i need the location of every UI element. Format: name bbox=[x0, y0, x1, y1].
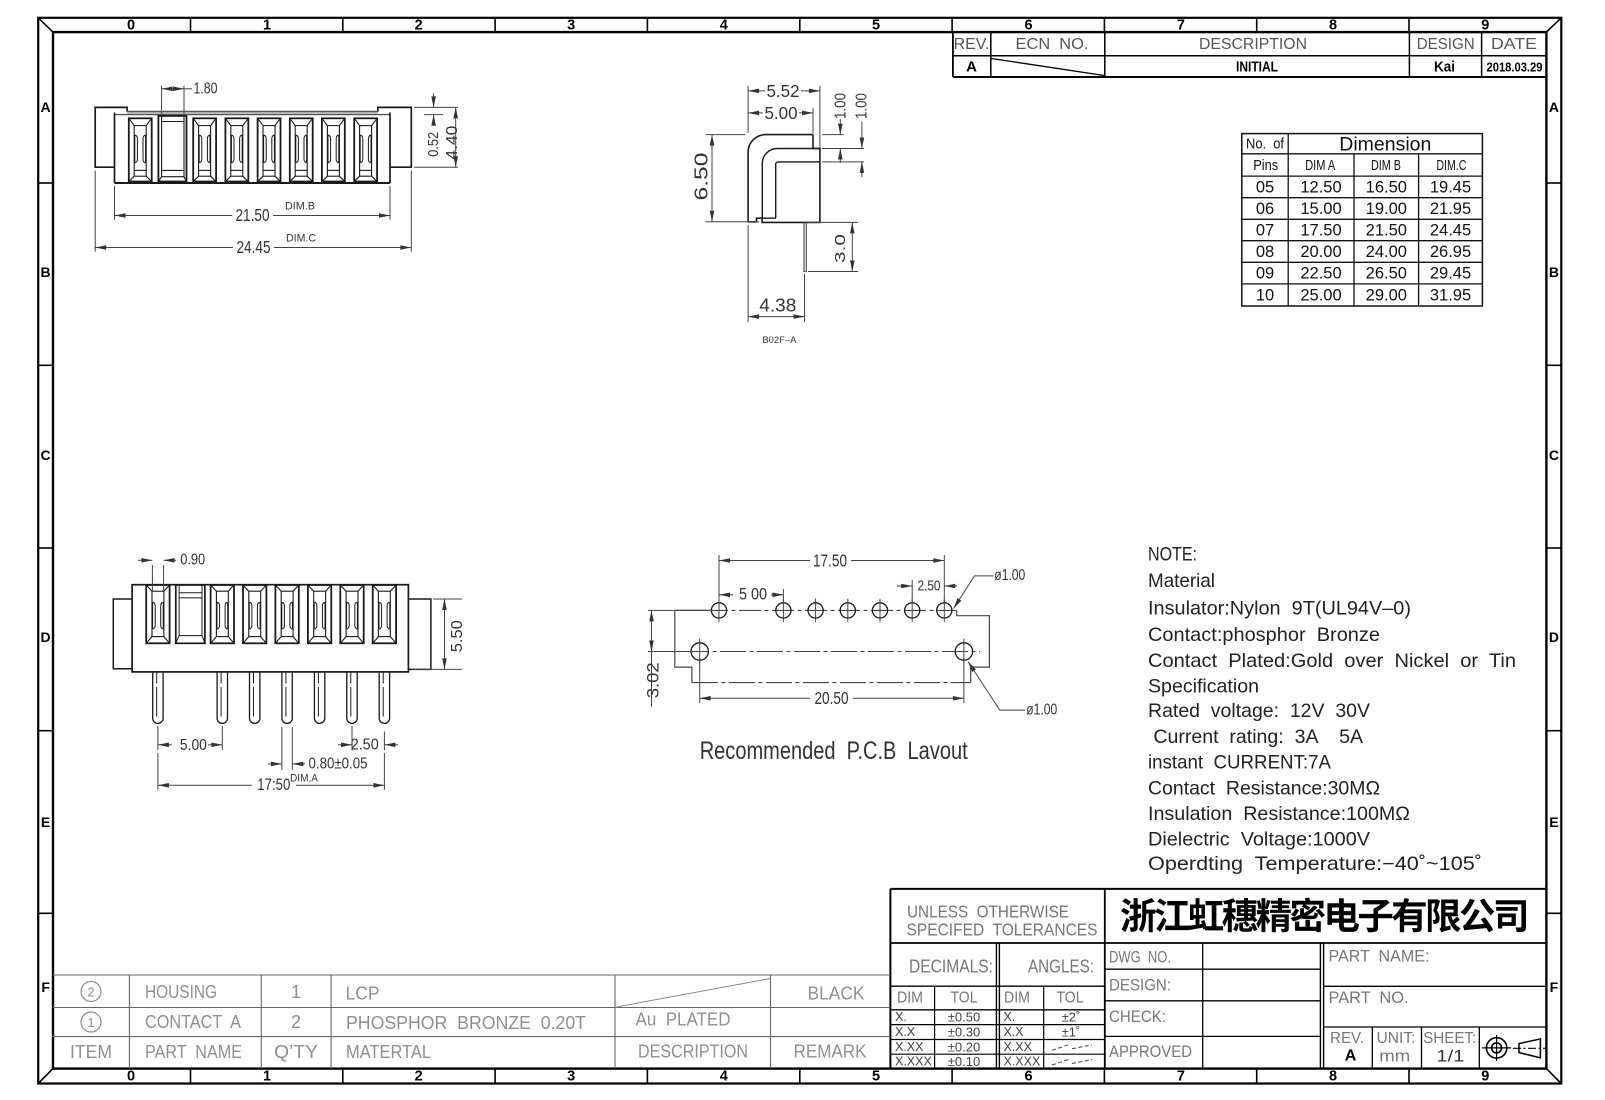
svg-text:Current rating: 3A 5A: Current rating: 3A 5A bbox=[1148, 726, 1363, 748]
svg-text:2: 2 bbox=[291, 1012, 301, 1032]
svg-text:5.50: 5.50 bbox=[449, 620, 466, 652]
svg-text:X.: X. bbox=[1004, 1010, 1016, 1024]
svg-text:Rated voltage: 12V 30V: Rated voltage: 12V 30V bbox=[1148, 700, 1370, 722]
svg-text:8: 8 bbox=[1329, 17, 1337, 33]
svg-text:±0.50: ±0.50 bbox=[948, 1010, 980, 1025]
svg-text:25.00: 25.00 bbox=[1300, 286, 1341, 304]
svg-text:0.80±0.05: 0.80±0.05 bbox=[309, 755, 368, 772]
svg-text:REV.: REV. bbox=[954, 36, 990, 53]
svg-text:6: 6 bbox=[1024, 17, 1032, 33]
svg-text:3: 3 bbox=[567, 17, 575, 33]
svg-text:PHOSPHOR BRONZE 0.20T: PHOSPHOR BRONZE 0.20T bbox=[346, 1013, 586, 1033]
svg-text:26.50: 26.50 bbox=[1366, 265, 1407, 283]
svg-text:21.50: 21.50 bbox=[1366, 221, 1407, 239]
svg-text:A: A bbox=[41, 99, 51, 115]
svg-text:CHECK:: CHECK: bbox=[1109, 1007, 1166, 1026]
svg-text:DIM.C: DIM.C bbox=[286, 232, 316, 244]
svg-text:X.X: X.X bbox=[895, 1025, 916, 1039]
svg-text:24.45: 24.45 bbox=[1430, 221, 1471, 239]
svg-text:X.XXX: X.XXX bbox=[895, 1055, 932, 1069]
svg-text:4: 4 bbox=[720, 17, 728, 33]
svg-text:±1˚: ±1˚ bbox=[1062, 1025, 1081, 1040]
svg-text:Recommended P.C.B Lavout: Recommended P.C.B Lavout bbox=[700, 737, 968, 765]
svg-text:0: 0 bbox=[127, 17, 135, 33]
svg-text:21.50: 21.50 bbox=[236, 205, 270, 225]
svg-text:D: D bbox=[41, 629, 51, 645]
svg-text:E: E bbox=[1549, 814, 1558, 830]
svg-text:1.00: 1.00 bbox=[854, 93, 871, 119]
svg-text:DIM.B: DIM.B bbox=[285, 200, 315, 212]
svg-text:PART NAME: PART NAME bbox=[145, 1042, 242, 1062]
svg-text:31.95: 31.95 bbox=[1430, 286, 1471, 304]
svg-text:10: 10 bbox=[1256, 286, 1274, 304]
svg-text:24.45: 24.45 bbox=[237, 237, 271, 257]
svg-text:±0.30: ±0.30 bbox=[948, 1025, 980, 1040]
svg-text:DIM B: DIM B bbox=[1371, 157, 1401, 174]
svg-text:9: 9 bbox=[1481, 17, 1489, 33]
svg-text:08: 08 bbox=[1256, 243, 1274, 261]
svg-text:Insulation Resistance:100MΩ: Insulation Resistance:100MΩ bbox=[1148, 803, 1410, 825]
svg-text:B02F–A: B02F–A bbox=[762, 335, 797, 346]
svg-text:DESIGN: DESIGN bbox=[1417, 36, 1475, 53]
svg-text:SHEET:: SHEET: bbox=[1423, 1030, 1476, 1047]
svg-text:DIM: DIM bbox=[1004, 989, 1030, 1006]
svg-text:3.0: 3.0 bbox=[832, 234, 849, 263]
svg-text:DESIGN:: DESIGN: bbox=[1109, 975, 1171, 994]
svg-text:REMARK: REMARK bbox=[794, 1042, 867, 1062]
svg-text:9: 9 bbox=[1481, 1068, 1489, 1084]
svg-text:E: E bbox=[41, 814, 50, 830]
svg-text:17.50: 17.50 bbox=[813, 550, 847, 570]
svg-text:1: 1 bbox=[291, 982, 301, 1002]
svg-text:2: 2 bbox=[415, 17, 423, 33]
svg-text:NOTE:: NOTE: bbox=[1148, 544, 1197, 566]
svg-text:09: 09 bbox=[1256, 265, 1274, 283]
svg-text:12.50: 12.50 bbox=[1300, 178, 1341, 196]
svg-text:Q’TY: Q’TY bbox=[274, 1042, 318, 1062]
svg-text:A: A bbox=[1345, 1048, 1357, 1065]
svg-text:DESCRIPTION: DESCRIPTION bbox=[1199, 36, 1307, 53]
svg-text:A: A bbox=[1549, 99, 1559, 115]
svg-text:DWG NO.: DWG NO. bbox=[1109, 948, 1171, 967]
svg-text:INITIAL: INITIAL bbox=[1236, 58, 1278, 75]
svg-text:C: C bbox=[1549, 447, 1559, 463]
svg-text:1.00: 1.00 bbox=[832, 93, 849, 119]
svg-text:DESCRIPTION: DESCRIPTION bbox=[638, 1042, 748, 1062]
svg-text:X.XX: X.XX bbox=[1004, 1040, 1033, 1054]
svg-text:TOL: TOL bbox=[1057, 989, 1084, 1006]
svg-text:DECIMALS:: DECIMALS: bbox=[909, 957, 993, 977]
svg-text:SPECIFED TOLERANCES: SPECIFED TOLERANCES bbox=[907, 920, 1098, 940]
svg-text:26.95: 26.95 bbox=[1430, 243, 1471, 261]
svg-text:19.00: 19.00 bbox=[1366, 200, 1407, 218]
svg-text:29.00: 29.00 bbox=[1366, 286, 1407, 304]
svg-text:17.50: 17.50 bbox=[1300, 221, 1341, 239]
svg-text:A: A bbox=[966, 58, 977, 75]
svg-text:5: 5 bbox=[872, 17, 880, 33]
svg-text:0: 0 bbox=[127, 1068, 135, 1084]
svg-text:B: B bbox=[1549, 264, 1559, 280]
svg-text:29.45: 29.45 bbox=[1430, 265, 1471, 283]
svg-text:5 00: 5 00 bbox=[739, 586, 767, 604]
svg-text:F: F bbox=[1550, 979, 1559, 995]
svg-text:17:50: 17:50 bbox=[257, 776, 290, 794]
svg-text:20.00: 20.00 bbox=[1300, 243, 1341, 261]
svg-text:Specification: Specification bbox=[1148, 675, 1259, 697]
svg-text:5: 5 bbox=[872, 1068, 880, 1084]
svg-text:2: 2 bbox=[415, 1068, 423, 1084]
svg-text:±2˚: ±2˚ bbox=[1062, 1010, 1081, 1025]
svg-text:ø1.00: ø1.00 bbox=[994, 567, 1025, 584]
svg-text:HOUSING: HOUSING bbox=[145, 982, 217, 1002]
svg-text:APPROVED: APPROVED bbox=[1109, 1042, 1192, 1061]
svg-text:Dielectric Voltage:1000V: Dielectric Voltage:1000V bbox=[1148, 829, 1370, 851]
svg-text:BLACK: BLACK bbox=[808, 984, 865, 1004]
svg-text:1: 1 bbox=[87, 1015, 94, 1030]
svg-text:Contact Resistance:30MΩ: Contact Resistance:30MΩ bbox=[1148, 778, 1380, 800]
svg-text:20.50: 20.50 bbox=[815, 688, 849, 708]
svg-text:MATERTAL: MATERTAL bbox=[346, 1042, 431, 1062]
svg-text:15.00: 15.00 bbox=[1300, 200, 1341, 218]
svg-text:0.90: 0.90 bbox=[180, 552, 205, 569]
svg-text:05: 05 bbox=[1256, 178, 1274, 196]
svg-text:5.00: 5.00 bbox=[765, 103, 798, 123]
svg-text:No. of: No. of bbox=[1246, 136, 1285, 152]
svg-text:4.40: 4.40 bbox=[444, 125, 461, 159]
svg-text:21.95: 21.95 bbox=[1430, 200, 1471, 218]
svg-text:PART NO.: PART NO. bbox=[1329, 988, 1409, 1007]
svg-text:7: 7 bbox=[1177, 17, 1185, 33]
svg-text:19.45: 19.45 bbox=[1430, 178, 1471, 196]
svg-text:7: 7 bbox=[1177, 1068, 1185, 1084]
svg-text:X.X: X.X bbox=[1004, 1025, 1025, 1039]
svg-text:C: C bbox=[41, 447, 51, 463]
svg-text:8: 8 bbox=[1329, 1068, 1337, 1084]
svg-text:3.02: 3.02 bbox=[645, 662, 663, 698]
svg-text:Insulator:Nylon 9T(UL94V–0): Insulator:Nylon 9T(UL94V–0) bbox=[1148, 598, 1411, 620]
svg-text:TOL: TOL bbox=[951, 989, 978, 1006]
svg-text:ITEM: ITEM bbox=[70, 1042, 112, 1062]
svg-text:X.XX: X.XX bbox=[895, 1040, 924, 1054]
svg-text:X.XXX: X.XXX bbox=[1004, 1055, 1041, 1069]
svg-text:4.38: 4.38 bbox=[759, 295, 796, 315]
svg-text:0.52: 0.52 bbox=[425, 132, 442, 157]
svg-text:2.50: 2.50 bbox=[918, 578, 941, 595]
svg-text:24.00: 24.00 bbox=[1366, 243, 1407, 261]
svg-text:4: 4 bbox=[720, 1068, 728, 1084]
svg-text:Operdting Temperature:−40˚~10: Operdting Temperature:−40˚~105˚ bbox=[1148, 853, 1482, 875]
svg-text:PART NAME:: PART NAME: bbox=[1329, 947, 1430, 966]
svg-text:2018.03.29: 2018.03.29 bbox=[1487, 59, 1543, 74]
svg-text:±0.10: ±0.10 bbox=[948, 1054, 980, 1069]
svg-text:2: 2 bbox=[87, 984, 94, 999]
svg-text:1/1: 1/1 bbox=[1436, 1047, 1464, 1066]
svg-text:instant CURRENT:7A: instant CURRENT:7A bbox=[1148, 752, 1331, 774]
svg-text:REV.: REV. bbox=[1330, 1030, 1364, 1047]
svg-text:CONTACT A: CONTACT A bbox=[145, 1012, 241, 1032]
svg-text:±0.20: ±0.20 bbox=[948, 1039, 980, 1054]
svg-text:DATE: DATE bbox=[1491, 36, 1537, 53]
svg-text:06: 06 bbox=[1256, 200, 1274, 218]
svg-text:DIM: DIM bbox=[897, 989, 923, 1006]
svg-text:6.50: 6.50 bbox=[692, 153, 712, 201]
svg-text:Pins: Pins bbox=[1253, 157, 1278, 174]
svg-text:Dimension: Dimension bbox=[1339, 134, 1431, 156]
svg-text:5.00: 5.00 bbox=[180, 737, 207, 754]
svg-text:DIM.C: DIM.C bbox=[1436, 157, 1466, 174]
svg-text:2.50: 2.50 bbox=[351, 736, 379, 753]
svg-text:UNIT:: UNIT: bbox=[1377, 1030, 1416, 1047]
svg-text:Contact Plated:Gold over Ni: Contact Plated:Gold over Nickel or Tin bbox=[1148, 650, 1516, 672]
svg-text:LCP: LCP bbox=[346, 984, 380, 1004]
svg-text:16.50: 16.50 bbox=[1366, 178, 1407, 196]
svg-text:ECN NO.: ECN NO. bbox=[1016, 36, 1089, 53]
svg-text:1: 1 bbox=[263, 17, 271, 33]
svg-text:22.50: 22.50 bbox=[1300, 265, 1341, 283]
svg-text:mm: mm bbox=[1379, 1047, 1410, 1066]
svg-text:07: 07 bbox=[1256, 221, 1274, 239]
svg-text:ANGLES:: ANGLES: bbox=[1028, 957, 1094, 977]
svg-text:5.52: 5.52 bbox=[767, 81, 800, 101]
svg-text:D: D bbox=[1549, 629, 1559, 645]
svg-text:Au PLATED: Au PLATED bbox=[636, 1010, 731, 1030]
svg-text:UNLESS OTHERWISE: UNLESS OTHERWISE bbox=[907, 902, 1069, 922]
svg-text:Contact:phosphor Bronze: Contact:phosphor Bronze bbox=[1148, 624, 1380, 646]
svg-text:3: 3 bbox=[567, 1068, 575, 1084]
svg-text:1: 1 bbox=[263, 1068, 271, 1084]
svg-text:DIM A: DIM A bbox=[1305, 157, 1335, 174]
svg-text:Material: Material bbox=[1148, 570, 1215, 592]
svg-text:6: 6 bbox=[1024, 1068, 1032, 1084]
svg-text:Kai: Kai bbox=[1434, 58, 1455, 75]
svg-text:DIM.A: DIM.A bbox=[290, 772, 319, 784]
svg-text:1.80: 1.80 bbox=[194, 80, 218, 97]
svg-text:ø1.00: ø1.00 bbox=[1026, 701, 1057, 718]
svg-text:F: F bbox=[41, 979, 50, 995]
svg-text:X.: X. bbox=[895, 1010, 907, 1024]
svg-text:B: B bbox=[41, 264, 51, 280]
